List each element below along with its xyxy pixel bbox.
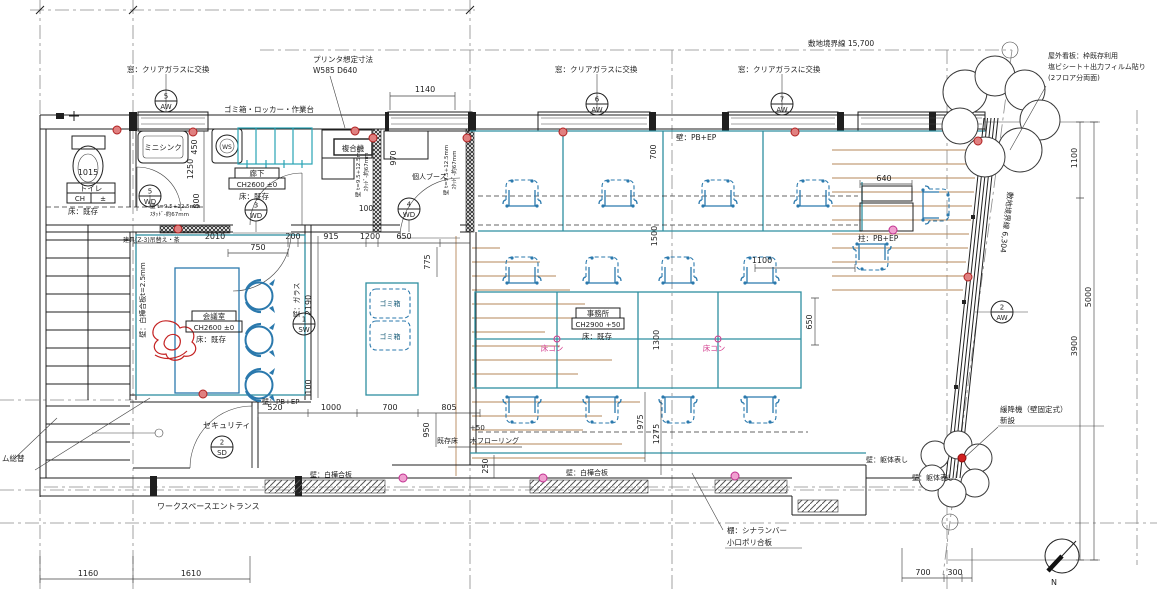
entrance-label: ワークスペースエントランス <box>157 502 260 511</box>
trash-label: ゴミ箱 <box>380 299 401 308</box>
svg-text:WD: WD <box>403 211 415 219</box>
security-label: セキュリティ <box>203 421 251 430</box>
svg-text:床：既存: 床：既存 <box>239 191 269 201</box>
svg-text:2190: 2190 <box>304 295 313 315</box>
toilet-label: トイレ <box>80 184 103 193</box>
sign-note: 塩ビシート＋出力フィルム貼り <box>1048 62 1146 71</box>
svg-text:300: 300 <box>947 568 962 577</box>
svg-text:2010: 2010 <box>205 232 225 241</box>
printer-note: W585 D640 <box>313 66 357 75</box>
svg-text:950: 950 <box>422 422 431 437</box>
floor-plan-drawing: N 5 AW 6 AW 7 AW <box>0 0 1157 589</box>
side-desk <box>860 203 913 231</box>
escape-note: 緩降機（壁固定式） <box>1000 404 1068 414</box>
svg-text:775: 775 <box>423 254 432 269</box>
svg-text:1015: 1015 <box>78 168 98 177</box>
office-label: 事務所 <box>587 308 610 318</box>
wall-birch25: 壁：白樺合板t=2.5mm <box>138 262 147 338</box>
wall-kutai: 壁：躯体表し <box>912 473 954 482</box>
ws-label: WS <box>222 144 232 151</box>
svg-text:4: 4 <box>407 201 412 209</box>
svg-text:520: 520 <box>267 403 282 412</box>
svg-text:450: 450 <box>190 139 199 154</box>
trees <box>919 56 1060 507</box>
svg-text:小口ポリ合板: 小口ポリ合板 <box>727 537 772 547</box>
svg-text:640: 640 <box>876 174 891 183</box>
tag-aw5: 5 AW <box>155 90 177 112</box>
escape-device-point <box>958 454 966 462</box>
window-note: 窓：クリアガラスに交換 <box>738 64 821 74</box>
left-partial-note: ム総替 <box>2 453 25 463</box>
chair-icon <box>599 179 637 207</box>
corridor-label: 廊下 <box>250 168 265 178</box>
trash-label: ゴミ箱 <box>380 332 401 341</box>
svg-text:AW: AW <box>776 106 787 114</box>
svg-text:新設: 新設 <box>1000 415 1015 425</box>
svg-text:AW: AW <box>996 314 1007 322</box>
svg-text:WD: WD <box>250 212 262 220</box>
svg-text:1100: 1100 <box>752 256 772 265</box>
svg-text:床：既存: 床：既存 <box>582 331 612 341</box>
svg-text:壁 t=9.5+12.5mm: 壁 t=9.5+12.5mm <box>442 145 450 195</box>
svg-text:壁 t=9.5+12.5mm: 壁 t=9.5+12.5mm <box>354 147 362 197</box>
svg-text:AW: AW <box>591 106 602 114</box>
svg-text:250: 250 <box>481 458 490 473</box>
svg-text:5000: 5000 <box>1084 287 1093 307</box>
exist-floor-note: 既存床 <box>437 436 458 445</box>
chair-icon <box>246 323 276 357</box>
door-note: 建具(Z-3)吊替え・茶 <box>123 236 180 244</box>
svg-text:ｽﾀｯﾄﾞ-約67mm: ｽﾀｯﾄﾞ-約67mm <box>362 153 370 192</box>
wall-birch: 壁：白樺合板 <box>566 468 608 477</box>
svg-text:3: 3 <box>254 202 258 210</box>
svg-text:ｽﾀｯﾄﾞ-約67mm: ｽﾀｯﾄﾞ-約67mm <box>150 210 189 218</box>
toilet-floor: 床：既存 <box>68 206 98 216</box>
chair-icon <box>583 395 621 423</box>
tag-aw6: 6 AW <box>586 93 608 115</box>
printer-note: プリンタ想定寸法 <box>313 54 373 64</box>
svg-text:650: 650 <box>805 314 814 329</box>
wood-floor-hatch <box>456 150 978 476</box>
svg-text:1000: 1000 <box>321 403 341 412</box>
svg-text:CH2600 ±0: CH2600 ±0 <box>237 181 278 189</box>
tag-wd4: 4 WD <box>398 198 420 220</box>
svg-text:1250: 1250 <box>186 159 195 179</box>
booth-label: 個人ブース <box>412 172 447 181</box>
floor-con-label: 床コン <box>703 343 726 353</box>
boundary-top-label: 敷地境界線 15,700 <box>808 38 874 48</box>
chair-icon <box>853 242 891 270</box>
svg-text:1275: 1275 <box>652 424 661 444</box>
wood-floor-note: 木フローリング <box>470 436 519 445</box>
svg-text:CH: CH <box>75 195 85 203</box>
north-arrow-icon: N <box>1045 539 1079 587</box>
svg-text:970: 970 <box>389 150 398 165</box>
svg-text:1200: 1200 <box>360 232 380 241</box>
svg-text:975: 975 <box>636 414 645 429</box>
svg-text:+50: +50 <box>470 424 485 432</box>
svg-text:1100: 1100 <box>1070 148 1079 168</box>
chair-icon <box>246 368 276 402</box>
tag-number: 5 <box>164 93 168 101</box>
shelf-note: 棚：シナランバー <box>727 525 787 535</box>
svg-text:805: 805 <box>441 403 456 412</box>
svg-text:SW: SW <box>298 326 309 334</box>
svg-text:ｽﾀｯﾄﾞ-約67mm: ｽﾀｯﾄﾞ-約67mm <box>450 151 458 190</box>
tag-aw7: 7 AW <box>771 93 793 115</box>
svg-text:2: 2 <box>220 439 224 447</box>
tag-sd2: 2 SD <box>211 436 233 458</box>
chair-icon <box>794 179 832 207</box>
corridor-fixtures <box>138 128 428 189</box>
north-label: N <box>1051 578 1057 587</box>
chair-icon <box>699 179 737 207</box>
wall-pier <box>129 112 137 131</box>
mini-sink-label: ミニシンク <box>144 143 182 152</box>
svg-text:3900: 3900 <box>1070 336 1079 356</box>
svg-text:100: 100 <box>304 379 313 394</box>
svg-text:915: 915 <box>323 232 338 241</box>
wall-birch: 壁：白樺合板 <box>310 470 352 479</box>
security-door-swing <box>190 406 252 468</box>
tag-code: AW <box>160 103 171 111</box>
svg-text:800: 800 <box>192 193 201 208</box>
floor-con-label: 床コン <box>541 343 564 353</box>
boundary-right-label: 敷地境界線 6,304 <box>998 191 1015 253</box>
svg-text:5: 5 <box>148 188 152 196</box>
bins-locker-note: ゴミ箱・ロッカー・作業台 <box>224 104 314 114</box>
svg-text:CH2600 ±0: CH2600 ±0 <box>194 324 235 332</box>
meeting-label: 会議室 <box>203 311 226 321</box>
svg-text:±: ± <box>100 195 106 203</box>
chair-icon <box>503 256 541 284</box>
svg-text:1300: 1300 <box>652 330 661 350</box>
chair-icon <box>659 256 697 284</box>
svg-text:床：既存: 床：既存 <box>196 334 226 344</box>
window-note: 窓：クリアガラスに交換 <box>127 64 210 74</box>
svg-text:1500: 1500 <box>650 226 659 246</box>
svg-text:1: 1 <box>302 316 306 324</box>
svg-text:2: 2 <box>1000 304 1004 312</box>
svg-text:700: 700 <box>915 568 930 577</box>
svg-text:6: 6 <box>595 96 600 104</box>
wall-pbep: 壁：PB+EP <box>676 132 717 142</box>
chair-icon <box>583 256 621 284</box>
window-note: 窓：クリアガラスに交換 <box>555 64 638 74</box>
svg-text:7: 7 <box>780 96 784 104</box>
handrail-post <box>155 429 163 437</box>
walls <box>40 112 985 515</box>
tag-wd3: 3 WD <box>245 199 267 221</box>
svg-text:SD: SD <box>217 449 227 457</box>
chair-icon <box>503 395 541 423</box>
side-desk <box>862 186 912 201</box>
svg-text:CH2900 +50: CH2900 +50 <box>576 321 621 329</box>
col-pbep: 柱：PB+EP <box>858 233 899 243</box>
sign-note: (2フロア分両面) <box>1048 73 1100 82</box>
chair-icon <box>741 395 779 423</box>
svg-text:650: 650 <box>396 232 411 241</box>
wall-glass: 壁：ガラス <box>292 283 301 318</box>
staircase <box>35 225 163 470</box>
chair-icon <box>503 179 541 207</box>
tag-aw2: 2 AW <box>991 301 1013 323</box>
svg-text:700: 700 <box>382 403 397 412</box>
floor-plan-page: N 5 AW 6 AW 7 AW <box>0 0 1157 589</box>
svg-text:700: 700 <box>649 144 658 159</box>
svg-text:1610: 1610 <box>181 569 201 578</box>
svg-text:1160: 1160 <box>78 569 98 578</box>
svg-text:100: 100 <box>359 204 374 213</box>
chair-icon <box>659 395 697 423</box>
svg-text:750: 750 <box>250 243 265 252</box>
office-area <box>470 131 985 453</box>
person-sketch <box>153 321 196 360</box>
sign-note: 屋外看板：枠既存利用 <box>1048 51 1118 60</box>
svg-text:1140: 1140 <box>415 85 435 94</box>
svg-text:200: 200 <box>285 232 300 241</box>
wall-kutai: 壁：躯体表し <box>866 455 908 464</box>
